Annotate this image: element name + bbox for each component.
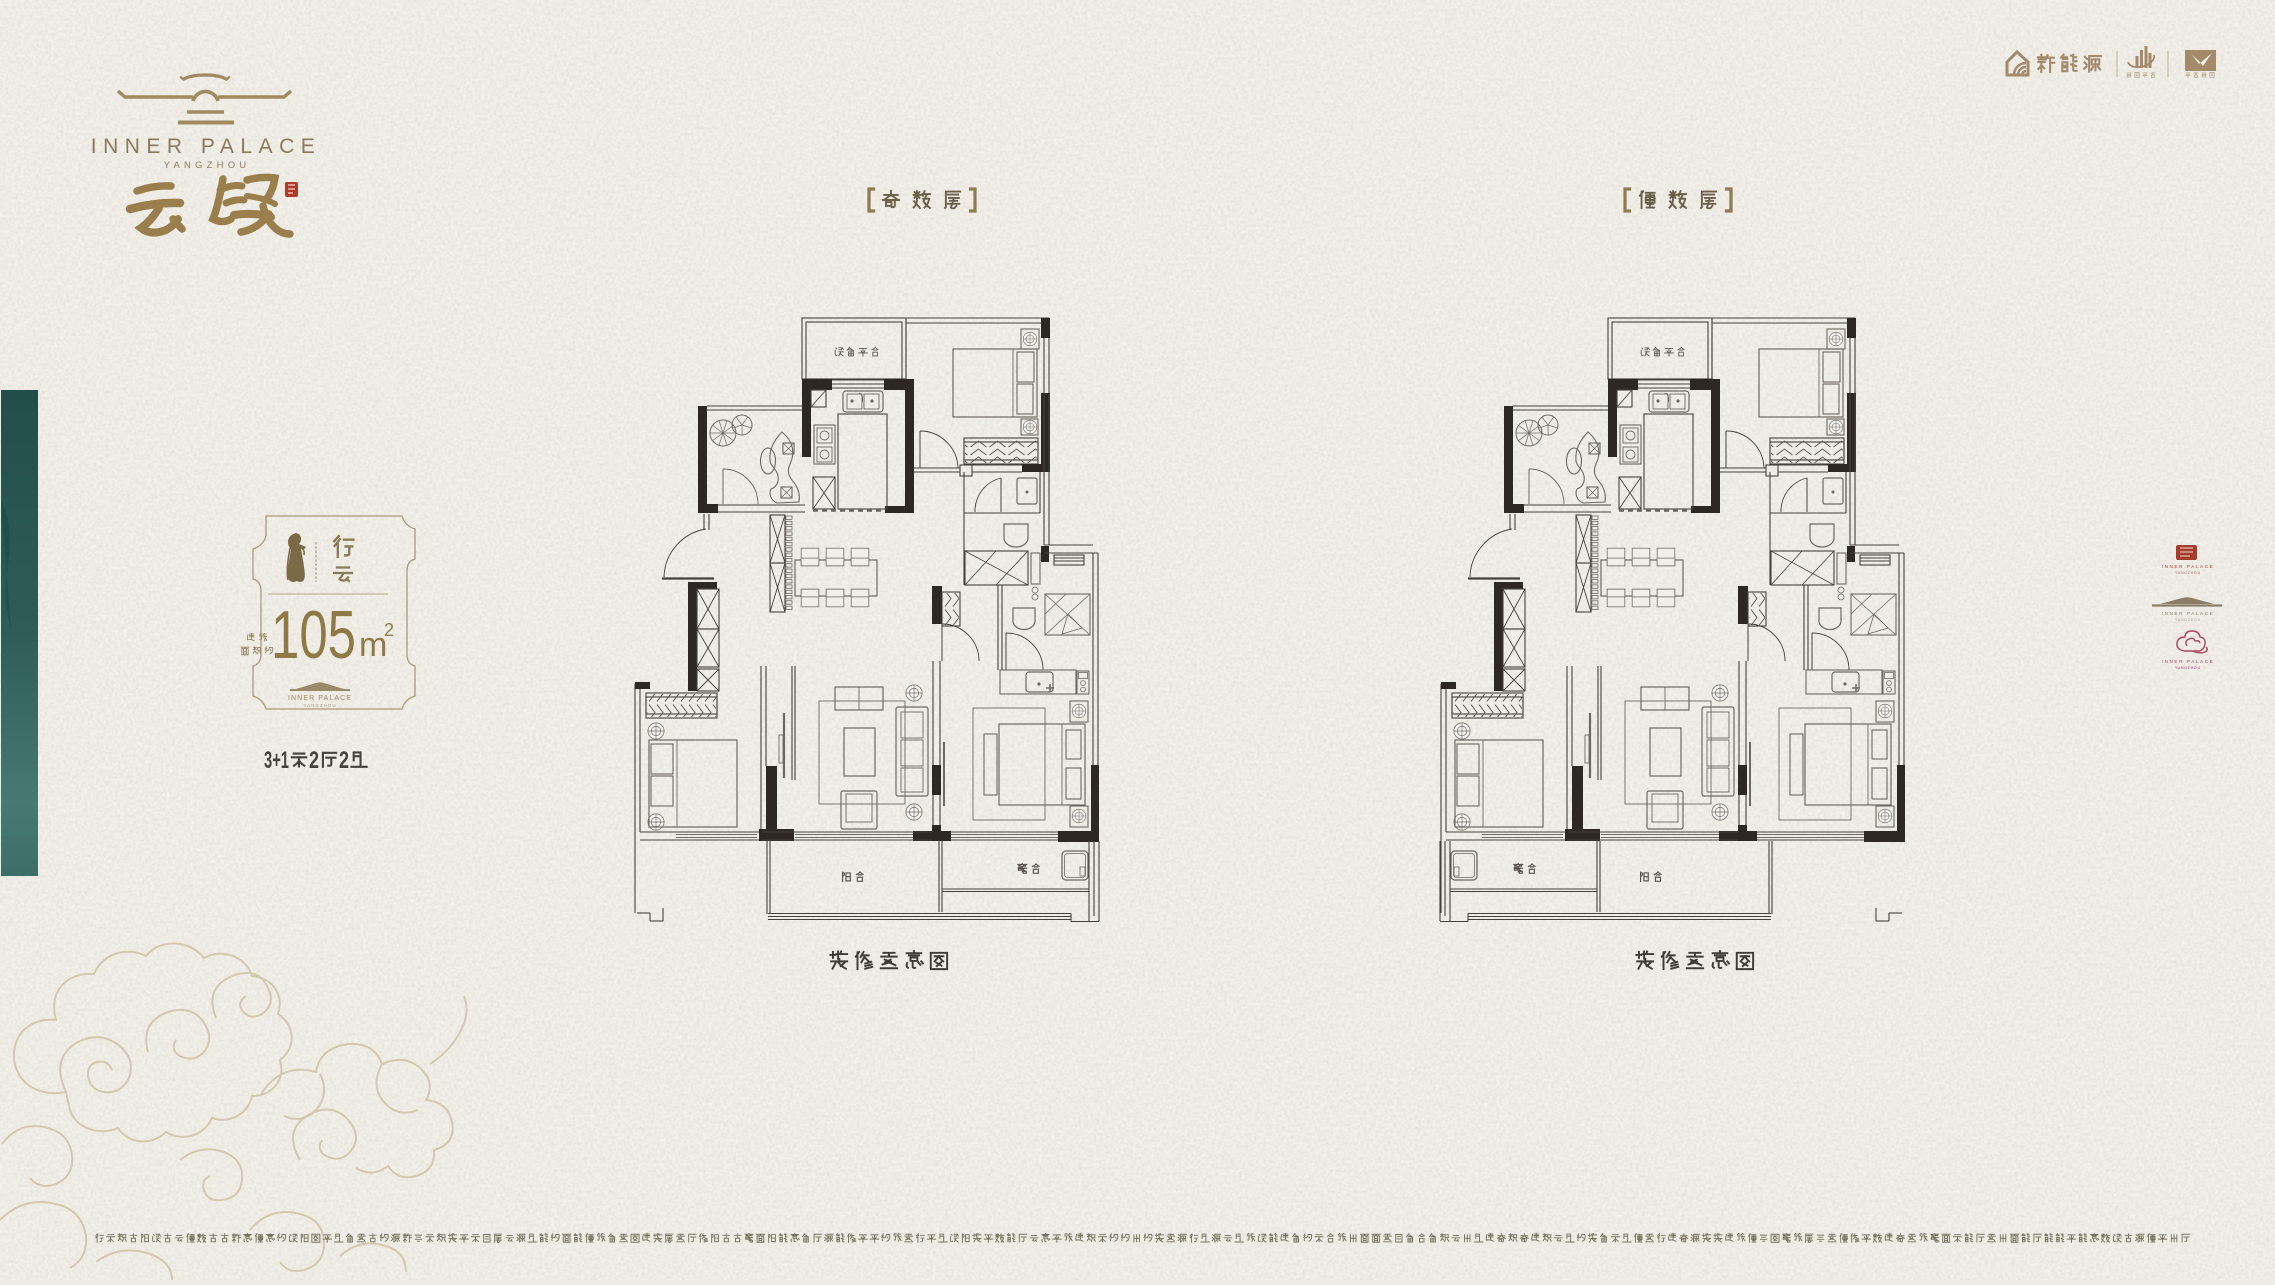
svg-text:YANGZHOU: YANGZHOU bbox=[2175, 618, 2201, 622]
svg-text:YANGZHOU: YANGZHOU bbox=[303, 703, 336, 708]
svg-text:2: 2 bbox=[309, 747, 319, 774]
svg-text:2: 2 bbox=[384, 620, 394, 640]
svg-text:INNER PALACE: INNER PALACE bbox=[2162, 659, 2215, 664]
svg-text:INNER PALACE: INNER PALACE bbox=[91, 135, 322, 158]
svg-text:105: 105 bbox=[271, 597, 356, 673]
svg-text:YANGZHOU: YANGZHOU bbox=[2175, 666, 2201, 670]
svg-text:INNER PALACE: INNER PALACE bbox=[2162, 611, 2215, 616]
svg-text:3+1: 3+1 bbox=[264, 747, 289, 774]
svg-text:INNER PALACE: INNER PALACE bbox=[288, 695, 352, 702]
svg-text:INNER PALACE: INNER PALACE bbox=[2162, 564, 2215, 569]
svg-text:YANGZHOU: YANGZHOU bbox=[164, 160, 251, 171]
svg-text:2: 2 bbox=[339, 747, 349, 774]
svg-text:YANGZHOU: YANGZHOU bbox=[2175, 571, 2201, 575]
